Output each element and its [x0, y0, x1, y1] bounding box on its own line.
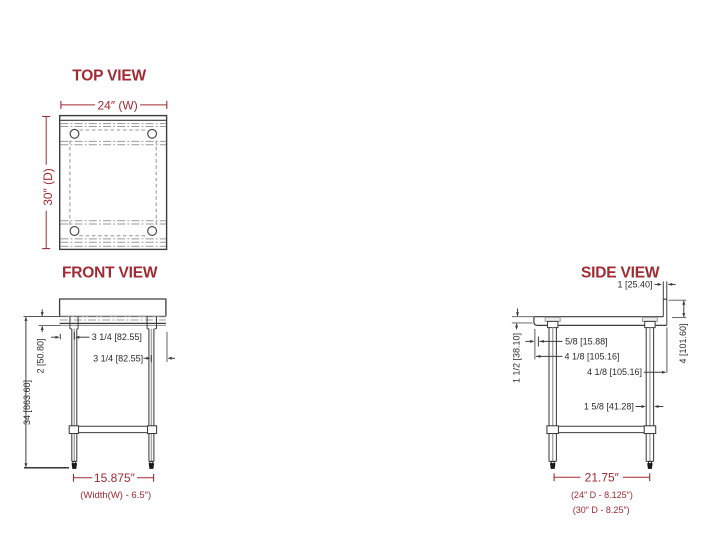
svg-text:21.75″: 21.75″	[585, 471, 620, 485]
svg-text:2 [50.80]: 2 [50.80]	[36, 338, 46, 373]
svg-text:15.875″: 15.875″	[94, 471, 136, 485]
svg-text:FRONT VIEW: FRONT VIEW	[62, 265, 158, 282]
svg-text:34 [863.60]: 34 [863.60]	[22, 380, 32, 425]
svg-text:(Width(W) - 6.5″): (Width(W) - 6.5″)	[80, 490, 151, 501]
svg-text:30″ (D): 30″ (D)	[41, 168, 55, 206]
svg-text:4 1/8 [105.16]: 4 1/8 [105.16]	[587, 367, 642, 377]
svg-text:1 1/2 [38.10]: 1 1/2 [38.10]	[512, 333, 522, 383]
svg-text:24″ (W): 24″ (W)	[97, 98, 137, 112]
svg-text:4 [101.60]: 4 [101.60]	[678, 323, 688, 363]
svg-text:3 1/4 [82.55]: 3 1/4 [82.55]	[93, 353, 143, 363]
svg-text:(24″ D - 8.125″): (24″ D - 8.125″)	[571, 490, 633, 500]
svg-text:3 1/4 [82.55]: 3 1/4 [82.55]	[92, 332, 142, 342]
svg-text:1 [25.40]: 1 [25.40]	[617, 279, 652, 289]
svg-text:TOP VIEW: TOP VIEW	[72, 68, 146, 85]
svg-text:5/8 [15.88]: 5/8 [15.88]	[565, 336, 608, 346]
svg-text:4 1/8 [105.16]: 4 1/8 [105.16]	[565, 351, 620, 361]
svg-text:(30″ D - 8.25″): (30″ D - 8.25″)	[573, 505, 630, 515]
svg-text:1 5/8 [41.28]: 1 5/8 [41.28]	[584, 401, 634, 411]
